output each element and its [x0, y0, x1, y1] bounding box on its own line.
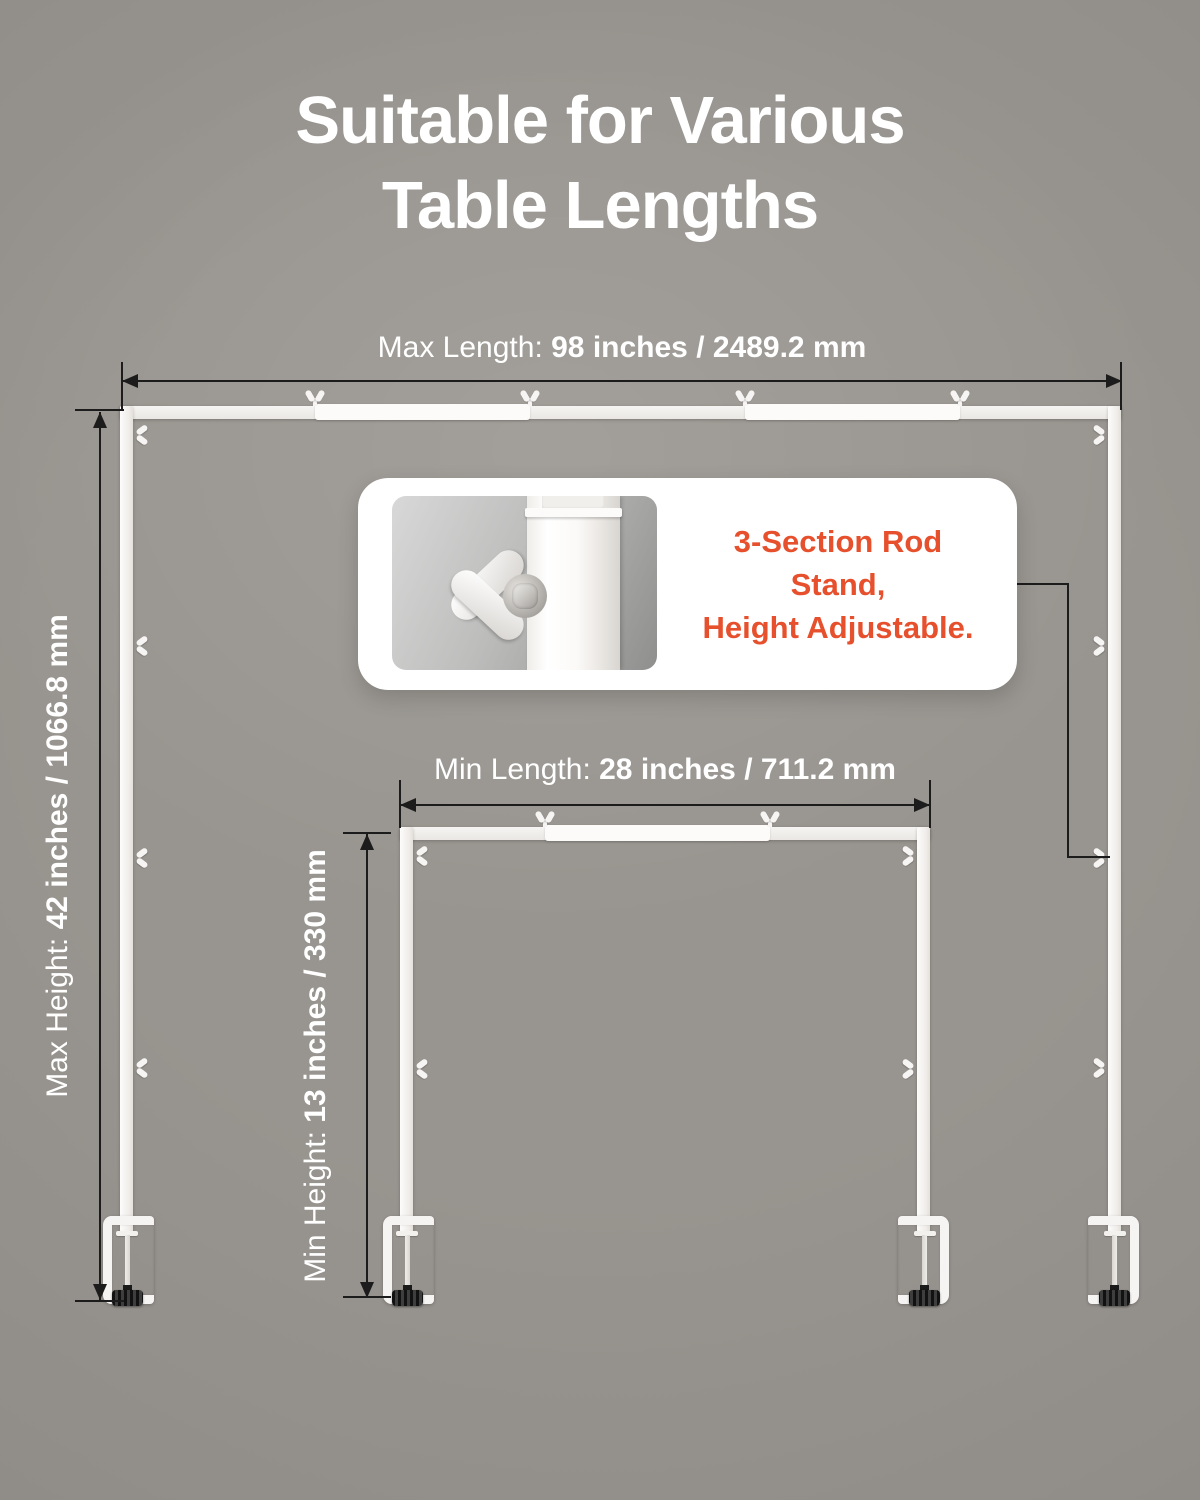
wing-nut-closeup-photo — [392, 496, 657, 670]
wing-nut-clip-icon — [415, 1058, 429, 1080]
max-length-prefix: Max Length: — [378, 331, 551, 364]
max-height-value: 42 inches / 1066.8 mm — [41, 614, 74, 929]
rod-telescoping-sleeve — [315, 404, 530, 420]
callout-text: 3-Section Rod Stand, Height Adjustable. — [688, 478, 988, 690]
min-height-text: Min Height: 13 inches / 330 mm — [299, 849, 333, 1283]
min-length-dimension-line — [400, 804, 930, 806]
max-length-value: 98 inches / 2489.2 mm — [551, 331, 866, 364]
wing-nut-clip-icon — [901, 1058, 915, 1080]
dimension-end-tick — [343, 1296, 391, 1298]
wing-nut-clip-icon — [135, 847, 149, 869]
table-clamp-icon — [1097, 1216, 1139, 1308]
wing-nut-clip-icon — [135, 1057, 149, 1079]
min-length-prefix: Min Length: — [434, 753, 599, 786]
min-height-prefix: Min Height: — [299, 1123, 332, 1283]
product-infographic: Suitable for Various Table Lengths — [0, 0, 1200, 1500]
max-length-dimension-line — [122, 380, 1122, 382]
wing-nut-clip-icon — [135, 635, 149, 657]
dimension-end-tick — [399, 780, 401, 828]
dimension-end-tick — [75, 409, 124, 411]
wing-nut-hub — [512, 583, 538, 609]
clamp-screw — [1112, 1235, 1117, 1286]
page-title: Suitable for Various Table Lengths — [0, 78, 1200, 248]
max-height-label: Max Height: 42 inches / 1066.8 mm — [36, 412, 80, 1300]
clamp-knob — [1099, 1290, 1130, 1306]
dimension-end-tick — [75, 1300, 124, 1302]
rod-collar-photo-part — [525, 508, 622, 517]
callout-connector-line — [1067, 856, 1110, 858]
callout-connector-line — [1015, 583, 1069, 585]
callout-connector-line — [1067, 583, 1069, 858]
wing-nut-clip-icon — [304, 390, 326, 406]
wing-nut-clip-icon — [1092, 424, 1106, 446]
max-frame-left-leg — [120, 406, 133, 1232]
table-clamp-icon — [383, 1216, 425, 1308]
clamp-screw — [405, 1235, 410, 1286]
clamp-knob — [392, 1290, 423, 1306]
max-height-prefix: Max Height: — [41, 929, 74, 1097]
max-height-text: Max Height: 42 inches / 1066.8 mm — [41, 614, 75, 1098]
arrow-left-icon — [122, 374, 138, 388]
min-frame-right-leg — [917, 827, 930, 1232]
max-height-dimension-line — [99, 412, 101, 1300]
min-frame-left-leg — [400, 827, 413, 1232]
clamp-screw — [125, 1235, 130, 1286]
wing-nut-clip-icon — [759, 811, 781, 827]
dimension-end-tick — [1120, 362, 1122, 410]
rod-telescoping-sleeve — [745, 404, 960, 420]
wing-nut-clip-icon — [734, 390, 756, 406]
min-height-dimension-line — [366, 834, 368, 1298]
feature-callout-card: 3-Section Rod Stand, Height Adjustable. — [358, 478, 1017, 690]
max-frame-right-leg — [1108, 406, 1121, 1232]
wing-nut-clip-icon — [949, 390, 971, 406]
wing-nut-clip-icon — [901, 845, 915, 867]
arrow-left-icon — [400, 798, 416, 812]
clamp-knob — [112, 1290, 143, 1306]
dimension-end-tick — [929, 780, 931, 828]
arrow-right-icon — [914, 798, 930, 812]
wing-nut-clip-icon — [135, 424, 149, 446]
title-line-1: Suitable for Various — [0, 78, 1200, 163]
callout-line-2: Height Adjustable. — [688, 606, 988, 649]
wing-nut-clip-icon — [519, 390, 541, 406]
min-height-value: 13 inches / 330 mm — [299, 849, 332, 1123]
max-frame-top-rod — [120, 406, 1121, 419]
dimension-end-tick — [121, 362, 123, 410]
wing-nut-clip-icon — [415, 845, 429, 867]
min-height-label: Min Height: 13 inches / 330 mm — [294, 834, 338, 1298]
arrow-down-icon — [93, 1284, 107, 1300]
rod-telescoping-sleeve — [545, 825, 770, 841]
wing-nut-clip-icon — [1092, 635, 1106, 657]
dimension-end-tick — [343, 832, 391, 834]
callout-line-1: 3-Section Rod Stand, — [688, 520, 988, 606]
min-length-value: 28 inches / 711.2 mm — [599, 753, 896, 786]
title-line-2: Table Lengths — [0, 163, 1200, 248]
arrow-up-icon — [93, 412, 107, 428]
arrow-up-icon — [360, 834, 374, 850]
table-clamp-icon — [103, 1216, 145, 1308]
min-length-label: Min Length: 28 inches / 711.2 mm — [400, 753, 930, 787]
wing-nut-clip-icon — [534, 811, 556, 827]
wing-nut-clip-icon — [1092, 1057, 1106, 1079]
max-length-label: Max Length: 98 inches / 2489.2 mm — [122, 331, 1122, 365]
wing-nut-clip-icon — [1092, 847, 1106, 869]
table-clamp-icon — [907, 1216, 949, 1308]
clamp-knob — [909, 1290, 940, 1306]
clamp-screw — [922, 1235, 927, 1286]
